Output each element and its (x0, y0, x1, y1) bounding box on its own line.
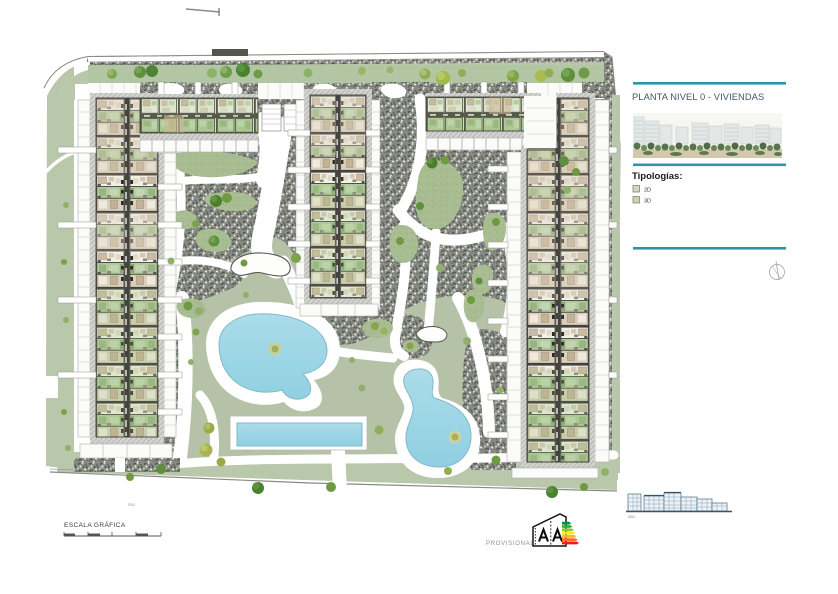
svg-text:S01: S01 (128, 502, 136, 507)
svg-text:Tipologías:: Tipologías: (632, 171, 683, 182)
svg-text:PLANTA NIVEL 0 - VIVIENDAS: PLANTA NIVEL 0 - VIVIENDAS (632, 92, 764, 102)
svg-text:ESCALA GRÁFICA: ESCALA GRÁFICA (64, 520, 126, 529)
svg-text:PROVISIONAL: PROVISIONAL (486, 541, 534, 547)
svg-text:2D: 2D (644, 188, 651, 194)
svg-text:S01: S01 (628, 514, 636, 519)
svg-text:3D: 3D (644, 199, 651, 205)
